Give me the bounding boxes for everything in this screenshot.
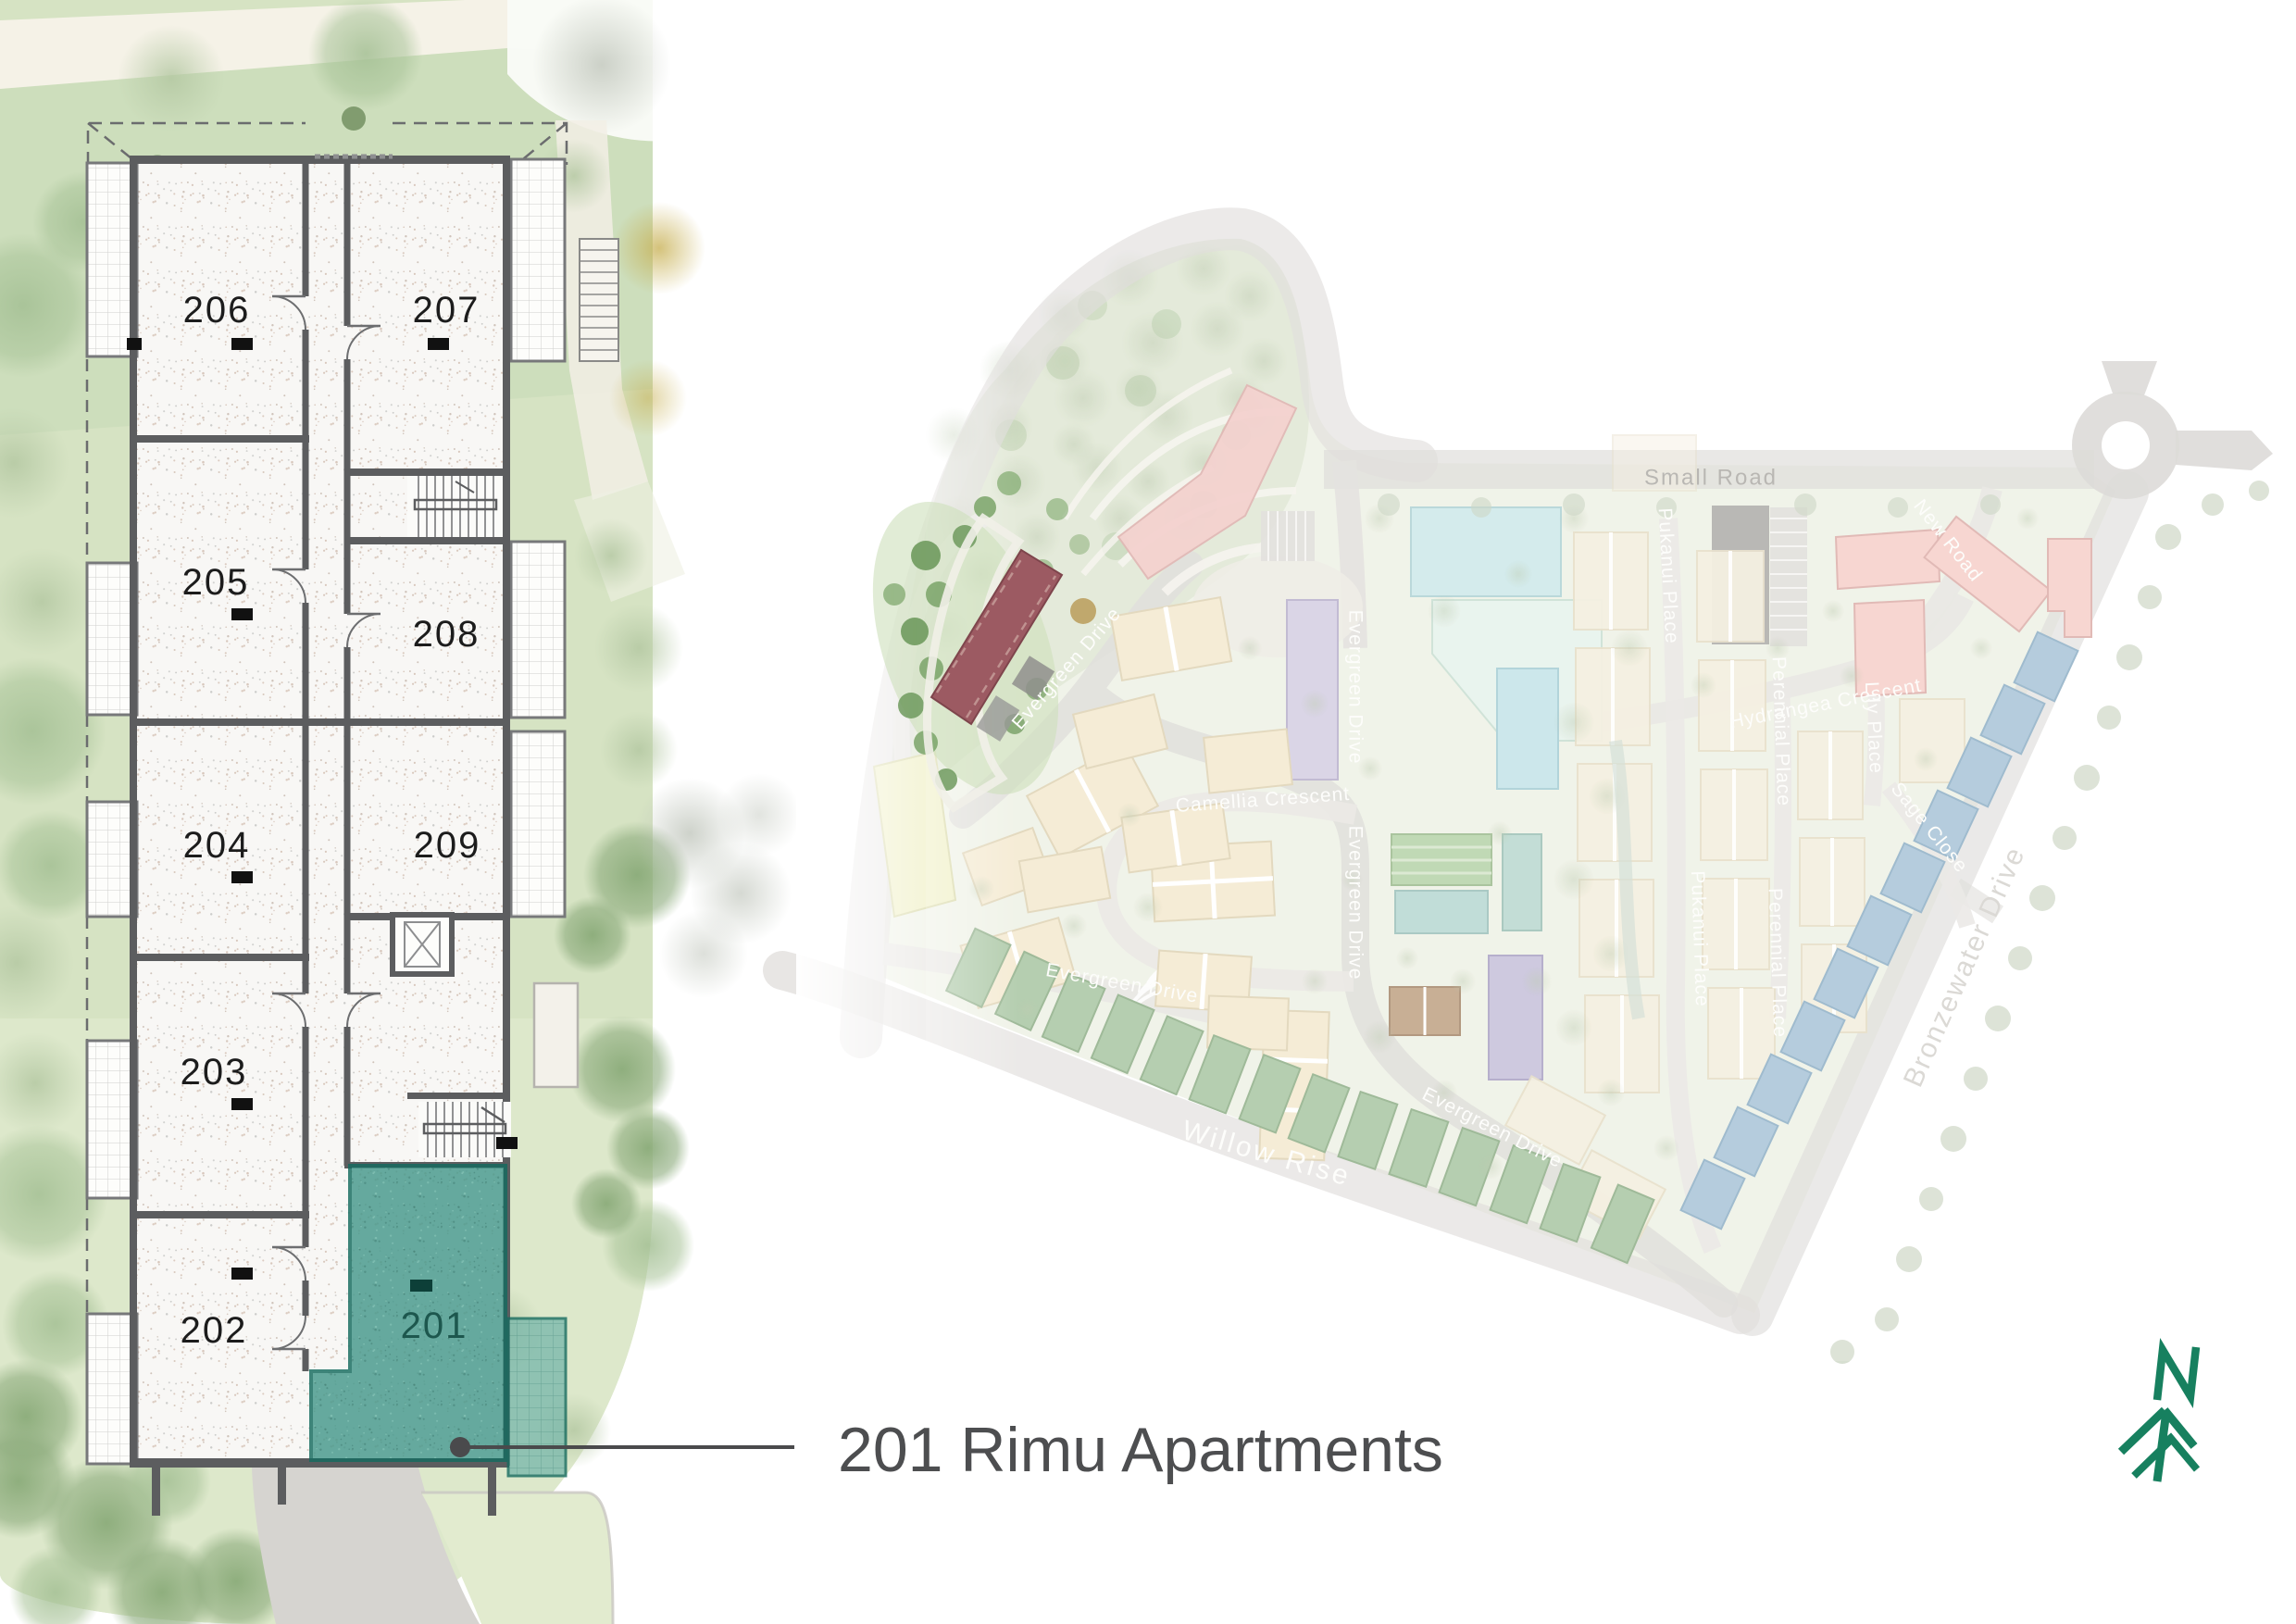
- svg-text:Evergreen Drive: Evergreen Drive: [1345, 610, 1366, 765]
- svg-text:208: 208: [413, 614, 480, 655]
- svg-text:205: 205: [182, 562, 250, 603]
- svg-text:206: 206: [183, 290, 251, 331]
- svg-text:Small Road: Small Road: [1644, 466, 1778, 491]
- svg-text:202: 202: [181, 1310, 248, 1351]
- svg-text:201 Rimu Apartments: 201 Rimu Apartments: [838, 1415, 1443, 1485]
- svg-text:203: 203: [181, 1052, 248, 1093]
- svg-text:Evergreen Drive: Evergreen Drive: [1345, 826, 1366, 981]
- svg-text:204: 204: [183, 825, 251, 866]
- svg-text:201: 201: [401, 1305, 468, 1346]
- svg-text:209: 209: [414, 825, 481, 866]
- svg-text:207: 207: [413, 290, 480, 331]
